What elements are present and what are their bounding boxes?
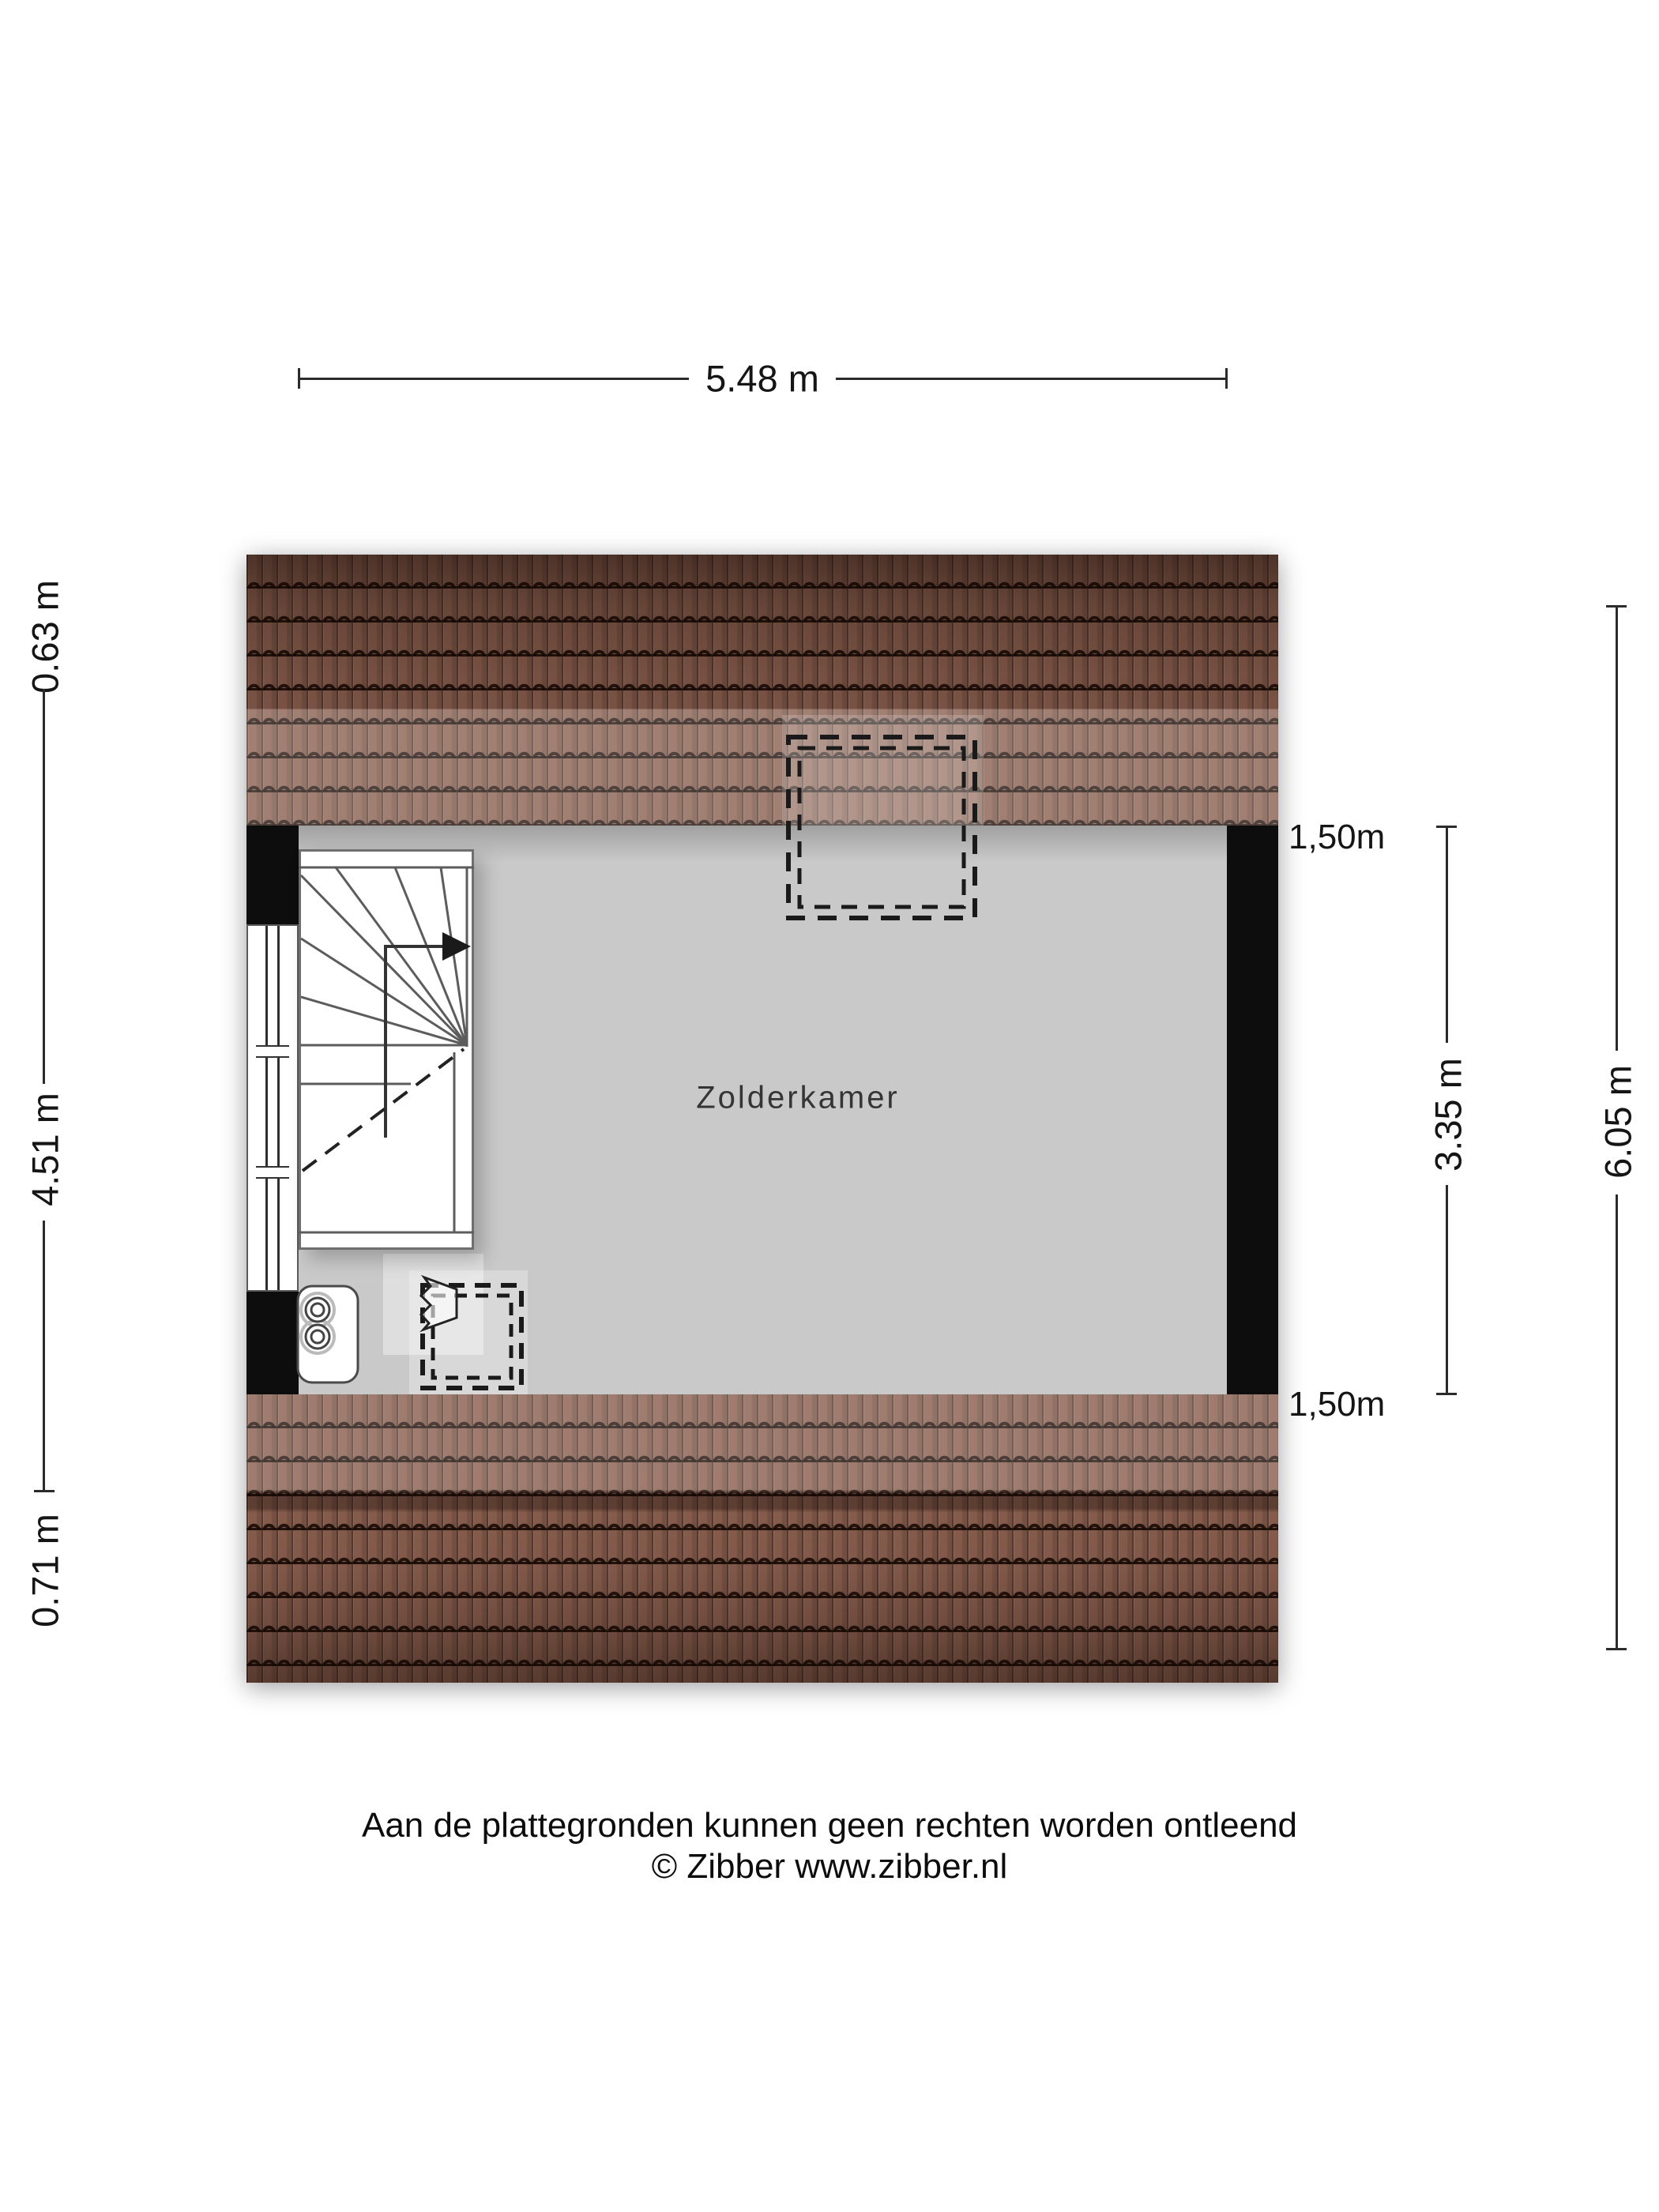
dimension-line	[43, 689, 45, 1084]
headroom-dashed-line	[303, 1049, 464, 1171]
copyright-text: © Zibber www.zibber.nl	[0, 1847, 1659, 1887]
dimension-tick	[1436, 1393, 1457, 1395]
attic-floorplan: Zolderkamer	[246, 555, 1278, 1683]
dormer-dashed-outline	[788, 737, 975, 918]
floorplan-page: 5.48 m 0.63 m 4.51 m 0.71 m 1,50m 3.35 m…	[0, 0, 1659, 2212]
boiler-icon	[298, 1286, 358, 1382]
headroom-label-bottom: 1,50m	[1288, 1385, 1385, 1424]
dimension-line	[1616, 1194, 1618, 1648]
plan-linework	[246, 555, 1278, 1683]
dimension-label-left-middle: 4.51 m	[24, 1093, 67, 1206]
dimension-line	[1616, 607, 1618, 1051]
dimension-line	[299, 378, 689, 380]
dimension-label-right-outer: 6.05 m	[1597, 1065, 1640, 1179]
headroom-label-top: 1,50m	[1288, 818, 1385, 857]
dimension-tick	[34, 1490, 55, 1492]
dimension-tick	[1225, 368, 1228, 389]
dimension-line	[836, 378, 1227, 380]
dimension-label-right-inner: 3.35 m	[1427, 1058, 1470, 1172]
dimension-line	[1446, 1185, 1448, 1393]
dimension-line	[43, 1221, 45, 1490]
disclaimer-text: Aan de plattegronden kunnen geen rechten…	[0, 1806, 1659, 1845]
room-name-label: Zolderkamer	[696, 1081, 900, 1116]
dimension-label-left-bottom: 0.71 m	[24, 1514, 67, 1627]
dimension-line	[1446, 826, 1448, 1043]
dimension-label-top-width: 5.48 m	[705, 357, 819, 401]
dimension-label-left-top: 0.63 m	[24, 580, 67, 694]
dimension-tick	[1606, 1648, 1627, 1650]
